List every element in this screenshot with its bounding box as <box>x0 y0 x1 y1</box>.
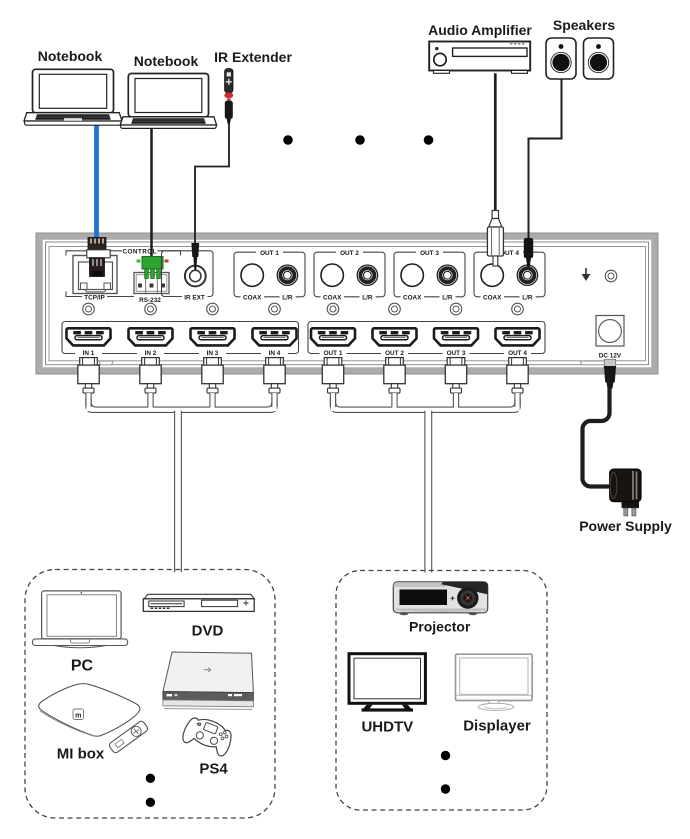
svg-text:UHDTV: UHDTV <box>361 719 413 736</box>
svg-text:Notebook: Notebook <box>134 53 199 69</box>
svg-text:Power Supply: Power Supply <box>579 518 672 534</box>
svg-text:L/R: L/R <box>282 294 293 301</box>
svg-text:OUT 3: OUT 3 <box>447 350 466 357</box>
svg-text:OUT 1: OUT 1 <box>260 250 279 257</box>
svg-text:Displayer: Displayer <box>463 718 531 735</box>
svg-text:Audio Amplifier: Audio Amplifier <box>428 22 532 38</box>
svg-text:MI box: MI box <box>57 746 105 763</box>
svg-text:COAX: COAX <box>483 294 502 301</box>
svg-text:COAX: COAX <box>243 294 262 301</box>
svg-text:m: m <box>75 712 81 719</box>
svg-text:IN 1: IN 1 <box>83 350 95 357</box>
svg-text:IN 4: IN 4 <box>269 350 281 357</box>
svg-text:IR Extender: IR Extender <box>214 49 292 65</box>
svg-text:L/R: L/R <box>362 294 373 301</box>
svg-text:Speakers: Speakers <box>553 17 615 33</box>
svg-text:L/R: L/R <box>442 294 453 301</box>
svg-text:DC 12V: DC 12V <box>599 353 622 360</box>
svg-text:IN 2: IN 2 <box>145 350 157 357</box>
svg-text:OUT 2: OUT 2 <box>385 350 404 357</box>
svg-text:L/R: L/R <box>522 294 533 301</box>
svg-text:TCP/IP: TCP/IP <box>84 294 105 301</box>
svg-text:Projector: Projector <box>409 619 471 635</box>
svg-text:IR EXT: IR EXT <box>184 294 205 301</box>
svg-text:COAX: COAX <box>323 294 342 301</box>
svg-text:OUT 4: OUT 4 <box>508 350 527 357</box>
svg-text:OUT 3: OUT 3 <box>420 250 439 257</box>
svg-text:COAX: COAX <box>403 294 422 301</box>
svg-text:IN 3: IN 3 <box>207 350 219 357</box>
svg-text:PC: PC <box>71 658 94 675</box>
svg-text:OUT 1: OUT 1 <box>324 350 343 357</box>
svg-text:Notebook: Notebook <box>38 48 103 64</box>
svg-text:OUT 2: OUT 2 <box>340 250 359 257</box>
svg-text:DVD: DVD <box>192 623 224 640</box>
svg-text:PS4: PS4 <box>199 761 228 778</box>
